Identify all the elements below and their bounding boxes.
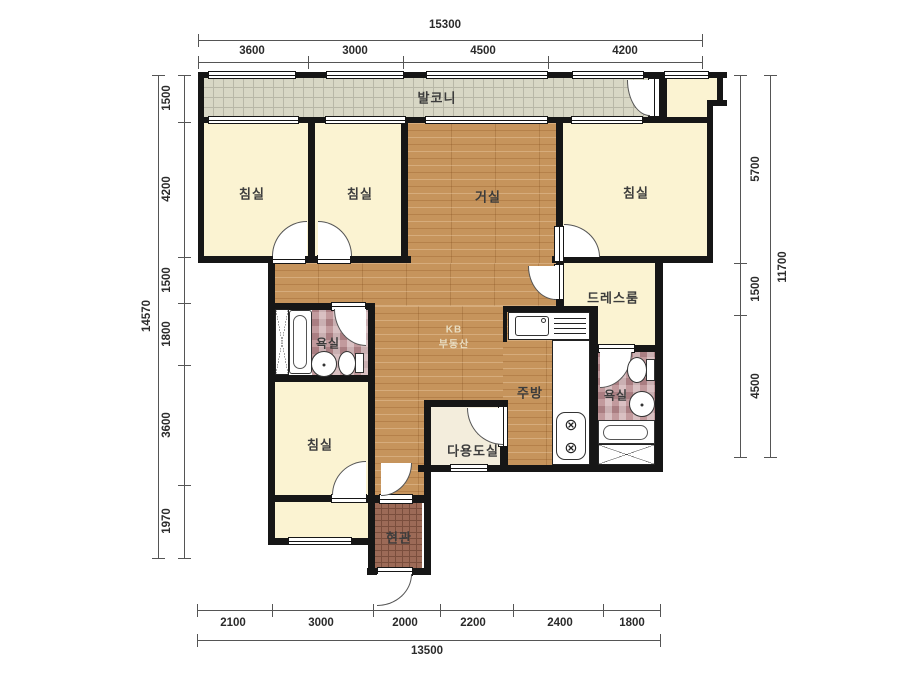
dim-tick	[734, 315, 747, 316]
dim-tick	[702, 56, 703, 69]
dim-top-seg-1: 3000	[342, 45, 368, 57]
room-label-kitchen: 주방	[517, 383, 543, 402]
dim-tick	[440, 604, 441, 617]
doorjamb-bedroom2	[317, 255, 351, 264]
dim-top-seg-2: 4500	[470, 45, 496, 57]
window-top-3	[426, 71, 548, 79]
dim-tick	[197, 634, 198, 647]
dim-tick	[198, 34, 199, 47]
toilet-right-tank	[646, 359, 655, 381]
room-label-bedroom-top-right: 침실	[623, 183, 649, 202]
window-balcony-1	[208, 116, 299, 124]
dim-line-right-segments	[740, 75, 741, 458]
dim-tick	[197, 604, 198, 617]
window-utility	[450, 464, 488, 472]
dim-tick	[513, 604, 514, 617]
dim-tick	[178, 365, 191, 366]
dim-tick	[734, 75, 747, 76]
dim-tick	[178, 257, 191, 258]
room-label-living: 거실	[475, 187, 501, 206]
dim-tick	[403, 56, 404, 69]
dim-bottom-seg-5: 1800	[619, 617, 645, 629]
window-top-2	[326, 71, 404, 79]
dim-left-seg-1: 4200	[161, 176, 173, 202]
toilet-left-bowl	[338, 351, 356, 376]
dim-left-seg-2: 1500	[161, 267, 173, 293]
washer-icon: ⊗	[564, 415, 577, 435]
dim-tick	[548, 56, 549, 69]
bathtub-left-basin	[293, 315, 307, 369]
dim-tick	[702, 34, 703, 47]
wall-right-outer-upper	[707, 103, 713, 263]
dim-tick	[734, 457, 747, 458]
toilet-left-tank	[355, 353, 364, 373]
dim-tick	[152, 558, 165, 559]
window-balcony-4	[571, 116, 643, 124]
dim-line-right-total	[770, 75, 771, 458]
washer-icon: ⊗	[564, 438, 577, 458]
dim-tick	[308, 56, 309, 69]
doorjamb-bedroom3	[554, 226, 564, 262]
dim-bottom-seg-4: 2400	[547, 617, 573, 629]
window-balcony-3	[425, 116, 548, 124]
bathtub-left	[289, 310, 312, 374]
dim-line-top-total	[198, 40, 703, 41]
dim-tick	[603, 604, 604, 617]
dim-right-seg-1: 1500	[750, 276, 762, 302]
wall-bed1-bed2	[308, 123, 315, 263]
hallway-floor	[275, 263, 556, 307]
room-label-utility: 다용도실	[447, 441, 499, 460]
top-right-room-floor-2	[667, 78, 707, 117]
corridor-floor	[375, 306, 503, 400]
dim-tick	[764, 75, 777, 76]
dim-bottom-total: 13500	[411, 645, 443, 657]
wall-counter-left-stub	[503, 306, 507, 342]
dim-left-total: 14570	[141, 300, 153, 332]
duct-right	[598, 444, 655, 465]
dim-bottom-seg-2: 2000	[392, 617, 418, 629]
dim-tick	[660, 634, 661, 647]
dim-tick	[178, 485, 191, 486]
dim-right-seg-2: 4500	[750, 373, 762, 399]
dim-line-bottom-segments	[197, 610, 661, 611]
wall-utility-left-entry-right	[424, 400, 431, 575]
room-label-bedroom-top-mid: 침실	[347, 184, 373, 203]
watermark-line2: 부동산	[439, 336, 470, 351]
duct-left	[275, 309, 289, 375]
dim-tick	[178, 558, 191, 559]
bathtub-right	[598, 420, 655, 444]
wall-left-outer-upper	[198, 72, 204, 263]
window-top-1	[208, 71, 296, 79]
dim-tick	[178, 75, 191, 76]
room-label-balcony: 발코니	[418, 88, 457, 107]
washer-icons: ⊗ ⊗	[556, 412, 586, 460]
wall-utility-top	[424, 400, 508, 407]
dim-bottom-seg-1: 3000	[308, 617, 334, 629]
bathtub-right-basin	[603, 425, 648, 440]
dim-left-seg-3: 1800	[161, 321, 173, 347]
wall-balcony-right-divider	[660, 78, 667, 123]
dim-top-seg-0: 3600	[239, 45, 265, 57]
dim-left-seg-0: 1500	[161, 85, 173, 111]
doorjamb-bedroom1	[272, 255, 306, 264]
wall-bed2-living	[401, 123, 408, 263]
room-label-bath-left: 욕실	[316, 335, 340, 352]
window-lower-balcony	[288, 537, 352, 545]
room-label-dressroom: 드레스룸	[587, 288, 639, 307]
door-arc-entry-outer	[377, 574, 412, 606]
room-label-entry: 현관	[386, 528, 412, 547]
wall-bedband-bottom-right	[552, 256, 713, 263]
dim-line-left-segments	[184, 75, 185, 559]
dim-tick	[373, 604, 374, 617]
dim-bottom-seg-0: 2100	[220, 617, 246, 629]
dim-tick	[660, 604, 661, 617]
dim-tick	[198, 56, 199, 69]
dim-top-seg-3: 4200	[612, 45, 638, 57]
window-balcony-2	[325, 116, 406, 124]
lower-balcony-floor	[275, 502, 368, 538]
window-top-5	[664, 71, 709, 79]
dim-top-total: 15300	[429, 19, 461, 31]
kitchen-faucet	[541, 318, 546, 323]
dim-line-top-segments	[198, 62, 703, 63]
dim-line-left-total	[158, 75, 159, 559]
dim-left-seg-4: 3600	[161, 412, 173, 438]
dim-right-seg-0: 5700	[750, 156, 762, 182]
window-top-4	[572, 71, 644, 79]
dim-right-total: 11700	[777, 251, 789, 282]
dim-left-seg-5: 1970	[161, 508, 173, 534]
watermark-line1: KB	[446, 325, 462, 336]
dim-tick	[178, 303, 191, 304]
wall-kitchen-bath	[590, 310, 598, 465]
wall-right-column-outer	[655, 263, 663, 472]
dim-tick	[152, 75, 165, 76]
sink-right	[629, 391, 655, 417]
stove-burners	[554, 318, 586, 335]
dim-tick	[272, 604, 273, 617]
doorjamb-bedroom-bottom	[331, 494, 367, 503]
room-label-bath-right: 욕실	[604, 387, 628, 404]
dim-tick	[178, 122, 191, 123]
toilet-right-bowl	[627, 357, 647, 383]
dim-tick	[764, 457, 777, 458]
dim-tick	[734, 263, 747, 264]
room-label-bedroom-bottom: 침실	[307, 435, 333, 454]
wall-mid-vertical	[368, 303, 375, 575]
sink-left	[311, 351, 337, 377]
dim-bottom-seg-3: 2200	[460, 617, 486, 629]
dim-line-bottom-total	[197, 640, 661, 641]
room-label-bedroom-top-left: 침실	[239, 184, 265, 203]
floorplan-canvas: ⊗ ⊗ 발코니 침실 침실 거실 침실 드레스룸 욕실 주방 욕실 다용도실 침…	[0, 0, 923, 676]
